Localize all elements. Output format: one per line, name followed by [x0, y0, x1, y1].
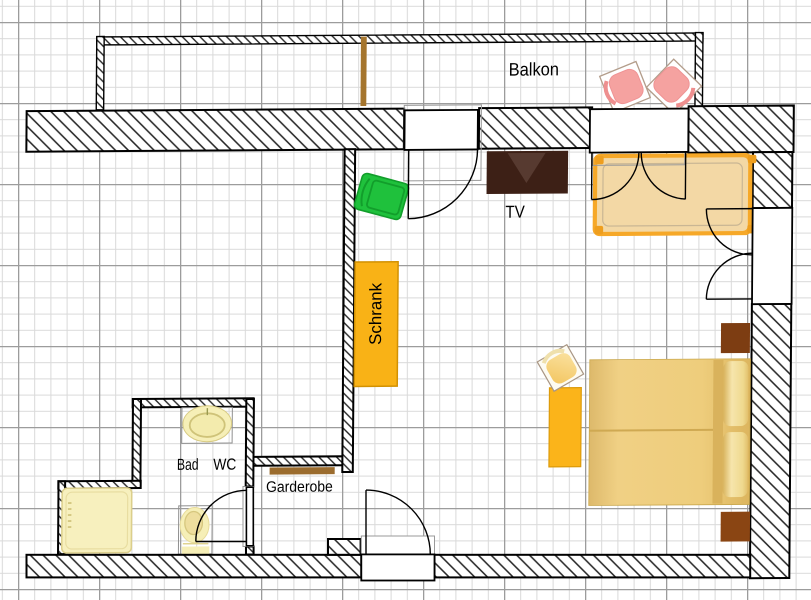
svg-text:Garderobe: Garderobe [266, 478, 333, 495]
svg-text:Balkon: Balkon [509, 59, 559, 79]
svg-text:Bad: Bad [177, 457, 199, 474]
svg-text:TV: TV [505, 202, 525, 222]
svg-text:WC: WC [213, 457, 236, 474]
svg-text:Schrank: Schrank [366, 282, 385, 345]
